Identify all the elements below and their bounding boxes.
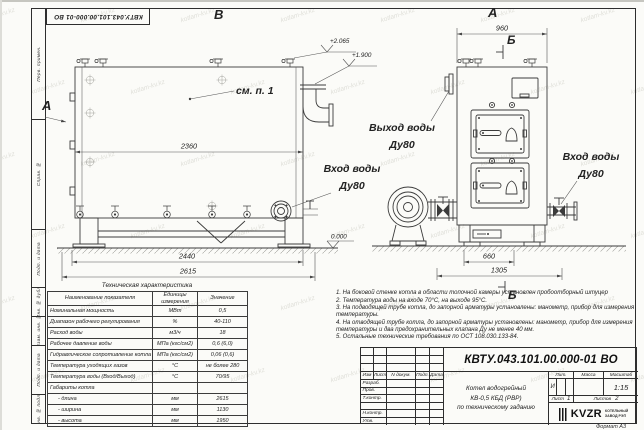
tech-cell: Диапазон рабочего регулирования	[48, 317, 153, 328]
inlet-pipe-valve	[547, 198, 577, 220]
tech-cell: МВт	[153, 306, 198, 317]
tb-lit-header: Лит.	[549, 372, 574, 379]
tech-cell: - ширина	[48, 405, 153, 416]
outlet-flange	[449, 74, 453, 94]
format-label: Формат А3	[584, 424, 638, 430]
dim-front-width: 960	[496, 24, 508, 33]
tech-cell: Номинальная мощность	[48, 306, 153, 317]
tb-header-data: Дата	[430, 372, 444, 380]
tech-row: Расход водым3/ч18	[48, 328, 248, 339]
kvzr-logo-text: KVZR	[571, 408, 602, 420]
tech-cell: мм	[153, 394, 198, 405]
elevation-2: +1.900	[352, 52, 372, 59]
tb-sheets-label: Листов	[594, 397, 611, 402]
outlet-label-2: Ду80	[388, 139, 415, 151]
outlet-label-1: Выход воды	[369, 122, 435, 134]
tech-cell: Температура уходящих газов	[48, 361, 153, 372]
tech-characteristics-table: Наименование показателя Единицы измерени…	[47, 291, 248, 427]
tech-cell: °С	[153, 372, 198, 383]
note-item: 1. На боковой стенке котла в области топ…	[336, 290, 635, 297]
tech-cell: °С	[153, 361, 198, 372]
tb-name-line3: по техническому заданию	[457, 403, 535, 413]
flue-outlet-elbow	[300, 85, 333, 126]
tech-cell: Расход воды	[48, 328, 153, 339]
inlet-front-label-1: Вход воды	[563, 151, 620, 163]
inlet-front-label-2: Ду80	[577, 168, 604, 180]
tech-cell: 70/95	[198, 372, 248, 383]
door-latch	[506, 181, 517, 194]
tb-row-nkontr: Н.контр.	[361, 410, 387, 418]
front-base	[459, 225, 545, 246]
blower-fan	[388, 187, 428, 245]
tech-cell: Рабочее давление воды	[48, 339, 153, 350]
drain-valves	[76, 206, 251, 218]
roof-valves	[77, 59, 295, 67]
see-note-callout: см. п. 1	[236, 85, 274, 97]
tech-cell: 40-110	[198, 317, 248, 328]
tb-sheet-value: 1	[567, 396, 570, 402]
tech-cell: 18	[198, 328, 248, 339]
blower-outlet-pipe	[428, 197, 457, 221]
tb-row-prov: Пров.	[361, 388, 387, 396]
control-panel	[512, 78, 538, 98]
view-label-front: А	[487, 5, 497, 20]
ground-side	[57, 248, 338, 254]
tech-row: Диапазон рабочего регулирования%40-110	[48, 317, 248, 328]
boiler-body-front	[457, 67, 547, 225]
elevation-1: +2.065	[330, 38, 350, 45]
note-item: 4. На отводящей трубе котла, до запорной…	[336, 320, 635, 334]
tb-doc-number: КВТУ.043.101.00.000-01 ВО	[444, 348, 638, 372]
tech-row: Рабочее давление водыМПа (кгс/см2)0,6 (6…	[48, 339, 248, 350]
tb-sheets: Листов 2	[574, 396, 638, 403]
tech-cell: не более 280	[198, 361, 248, 372]
tech-cell: Температура воды (Вход/Выход)	[48, 372, 153, 383]
tech-table-title: Техническая характеристика	[47, 282, 247, 289]
tech-header-name: Наименование показателя	[48, 292, 153, 306]
dim-side-overall: 2615	[179, 267, 197, 276]
tech-cell: 0,06 (0,6)	[198, 350, 248, 361]
tb-header-podp: Подп.	[416, 372, 430, 380]
tech-header-row: Наименование показателя Единицы измерени…	[48, 292, 248, 306]
lower-door	[471, 163, 529, 208]
tech-row: - ширинамм1130	[48, 405, 248, 416]
technical-notes: 1. На боковой стенке котла в области топ…	[336, 290, 635, 342]
tech-cell: Габариты котла	[48, 383, 153, 394]
tb-sheets-value: 2	[615, 396, 618, 402]
note-item: 5. Остальные технические требования по О…	[336, 334, 635, 341]
section-top-label: Б	[507, 33, 516, 47]
kvzr-logo-icon	[559, 408, 568, 421]
inlet-side-label-1: Вход воды	[324, 163, 381, 175]
tb-header-list: Лист	[374, 372, 387, 380]
tech-header-value: Значение	[198, 292, 248, 306]
tech-cell: - высота	[48, 416, 153, 427]
ground-front	[372, 246, 626, 252]
tech-row: Габариты котла	[48, 383, 248, 394]
tech-cell: 1950	[198, 416, 248, 427]
support-frame-side	[73, 218, 310, 247]
tech-cell: мм	[153, 405, 198, 416]
tech-cell: Гидравлическое сопротивление котла	[48, 350, 153, 361]
tech-cell: %	[153, 317, 198, 328]
tb-row-blank	[361, 403, 387, 411]
note-item: 3. На подводящей трубе котла, до запорно…	[336, 305, 635, 319]
tech-cell: МПа (кгс/см2)	[153, 339, 198, 350]
tech-cell: МПа (кгс/см2)	[153, 350, 198, 361]
tb-mass-value	[574, 379, 604, 396]
tech-cell: м3/ч	[153, 328, 198, 339]
tb-row-utv: Утв.	[361, 418, 387, 426]
view-label-side: В	[214, 7, 223, 22]
tech-header-units: Единицы измерения	[153, 292, 198, 306]
tech-cell: 1130	[198, 405, 248, 416]
position-marks	[85, 75, 228, 212]
tech-cell	[198, 383, 248, 394]
tech-row: Температура воды (Вход/Выход)°С70/95	[48, 372, 248, 383]
side-dimensions: 2360 2440 2615	[62, 142, 315, 282]
tech-row: - высотамм1950	[48, 416, 248, 427]
upper-door	[471, 110, 529, 158]
tb-header-docnum: N докум.	[387, 372, 416, 380]
tb-row-tkontr: Т.контр.	[361, 395, 387, 403]
tb-product-name: Котел водогрейный КВ-0,5 КБД (РВР) по те…	[444, 372, 549, 425]
side-stub-valve	[303, 201, 318, 215]
side-arrow-label: А	[41, 98, 51, 113]
tb-name-line2: КВ-0,5 КБД (РВР)	[470, 394, 521, 404]
tech-cell	[153, 383, 198, 394]
dim-front-overall: 1305	[491, 266, 508, 275]
section-mark-top: Б	[496, 33, 516, 59]
tech-cell: - длина	[48, 394, 153, 405]
tech-cell: 0,6 (6,0)	[198, 339, 248, 350]
tb-header-izm: Изм	[361, 372, 374, 380]
tech-row: - длинамм2615	[48, 394, 248, 405]
inlet-side-label-2: Ду80	[338, 180, 365, 192]
tb-sheet: Лист 1	[549, 396, 574, 403]
tech-cell: мм	[153, 416, 198, 427]
kvzr-logo-subtext: КОТЕЛЬНЫЙ ЗАВОД РЭП	[605, 409, 628, 418]
tb-scale-header: Масштаб	[604, 372, 638, 379]
tb-name-line1: Котел водогрейный	[466, 384, 526, 394]
tb-row-razrab: Разраб.	[361, 380, 387, 388]
front-screws	[489, 102, 514, 163]
tb-lit-value: И	[549, 379, 557, 396]
elevation-zero: 0.000	[331, 234, 347, 241]
side-view: В	[41, 7, 338, 254]
tech-row: Температура уходящих газов°Сне более 280	[48, 361, 248, 372]
tb-logo: KVZR КОТЕЛЬНЫЙ ЗАВОД РЭП	[549, 403, 638, 425]
tb-sheet-label: Лист	[552, 397, 564, 402]
dim-side-length: 2360	[180, 142, 197, 151]
door-latch	[506, 128, 517, 141]
tb-scale-value: 1:15	[604, 379, 638, 396]
tech-cell: 2615	[198, 394, 248, 405]
tb-mass-header: Масса	[574, 372, 604, 379]
tech-cell: 0,5	[198, 306, 248, 317]
tech-row: Номинальная мощностьМВт0,5	[48, 306, 248, 317]
front-view: А 960 Б	[369, 5, 626, 302]
title-block: Изм Лист N докум. Подп. Дата Разраб. Про…	[360, 347, 637, 424]
tech-row: Гидравлическое сопротивление котлаМПа (к…	[48, 350, 248, 361]
dim-side-base: 2440	[178, 252, 195, 261]
view-arrow-a: А	[41, 98, 66, 122]
dim-front-base: 660	[483, 252, 495, 261]
note-item: 2. Температура воды на входе 70°С, на вы…	[336, 298, 635, 305]
drawing-sheet: kotlam-kv.kzkotlam-kv.kzkotlam-kv.kzkotl…	[0, 0, 644, 430]
